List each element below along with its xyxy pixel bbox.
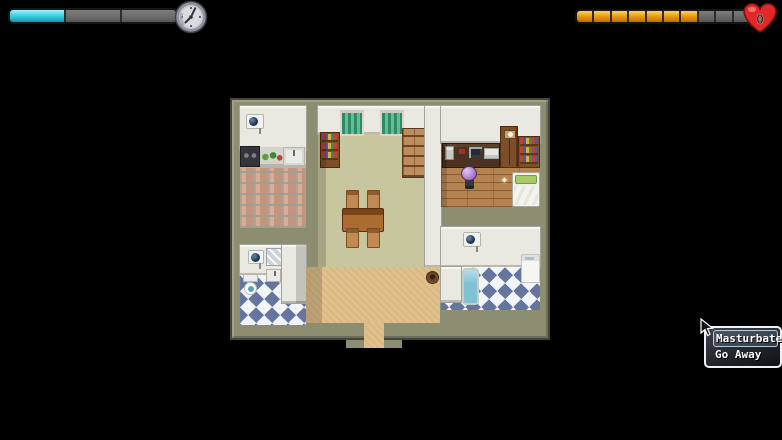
washing-machine-icon <box>521 254 540 283</box>
gauge-segment <box>122 10 176 22</box>
choice-menu-items: MasturbateGo Away <box>713 330 778 364</box>
gauge-segment <box>594 11 611 22</box>
gauge-segment <box>577 11 594 22</box>
affection-gauge <box>575 9 751 24</box>
choice-option-go-away[interactable]: Go Away <box>713 347 778 364</box>
kitchen-sink-icon <box>283 147 305 166</box>
air-conditioner-icon <box>248 250 264 264</box>
wash-basin-icon <box>266 269 281 282</box>
chair-icon <box>367 228 380 248</box>
exit-corridor <box>364 322 384 348</box>
center-wall <box>425 106 441 267</box>
air-conditioner-icon <box>246 114 264 129</box>
wall-shadow <box>306 267 322 323</box>
storage-crates-icon <box>402 128 425 178</box>
kitchen-floor <box>240 168 306 228</box>
window-curtain-icon <box>340 110 364 136</box>
gauge-segment <box>716 11 733 22</box>
clay-pot-icon <box>426 271 439 284</box>
bed-icon <box>512 172 540 207</box>
bath-partition-wall <box>441 267 461 302</box>
time-gauge <box>8 8 178 24</box>
printer-icon <box>484 148 499 159</box>
clock-box-icon <box>504 130 516 139</box>
gauge-segment <box>10 10 66 22</box>
red-book-icon <box>459 149 465 154</box>
mouse-cursor <box>699 318 714 337</box>
corridor-wall-right <box>384 340 402 348</box>
air-conditioner-icon <box>463 232 481 247</box>
sparkle-icon: ✦ <box>501 174 508 185</box>
gauge-segment <box>629 11 646 22</box>
gauge-segment <box>681 11 698 22</box>
wall-shadow <box>318 134 326 267</box>
food-items-icon <box>261 149 283 165</box>
gauge-segment <box>612 11 629 22</box>
heart-value: 0 <box>756 13 764 28</box>
chair-icon <box>367 190 380 210</box>
gauge-segment <box>647 11 664 22</box>
computer-icon <box>469 147 482 158</box>
stove-icon <box>240 146 260 167</box>
player-character <box>461 166 479 190</box>
hallway-floor <box>306 267 440 323</box>
choice-menu: MasturbateGo Away <box>704 326 782 368</box>
bookshelf-icon <box>518 136 540 168</box>
chair-icon <box>346 228 359 248</box>
chair-icon <box>346 190 359 210</box>
house-map[interactable]: ✦ <box>222 90 558 348</box>
corridor-wall-left <box>346 340 364 348</box>
toilet-icon <box>243 274 258 296</box>
choice-option-masturbate[interactable]: Masturbate <box>713 330 778 347</box>
wardrobe-icon <box>500 126 518 168</box>
desk-icon <box>442 143 500 168</box>
bathtub-icon <box>462 268 479 305</box>
clock-icon <box>174 0 208 34</box>
wall-shadow <box>441 143 447 207</box>
gauge-segment <box>699 11 716 22</box>
window-curtain-icon <box>380 110 404 136</box>
heart-icon: 0 <box>740 0 780 36</box>
wall-shadow <box>296 245 306 303</box>
gauge-segment <box>66 10 122 22</box>
gauge-segment <box>664 11 681 22</box>
game-screen: 0 <box>0 0 782 440</box>
